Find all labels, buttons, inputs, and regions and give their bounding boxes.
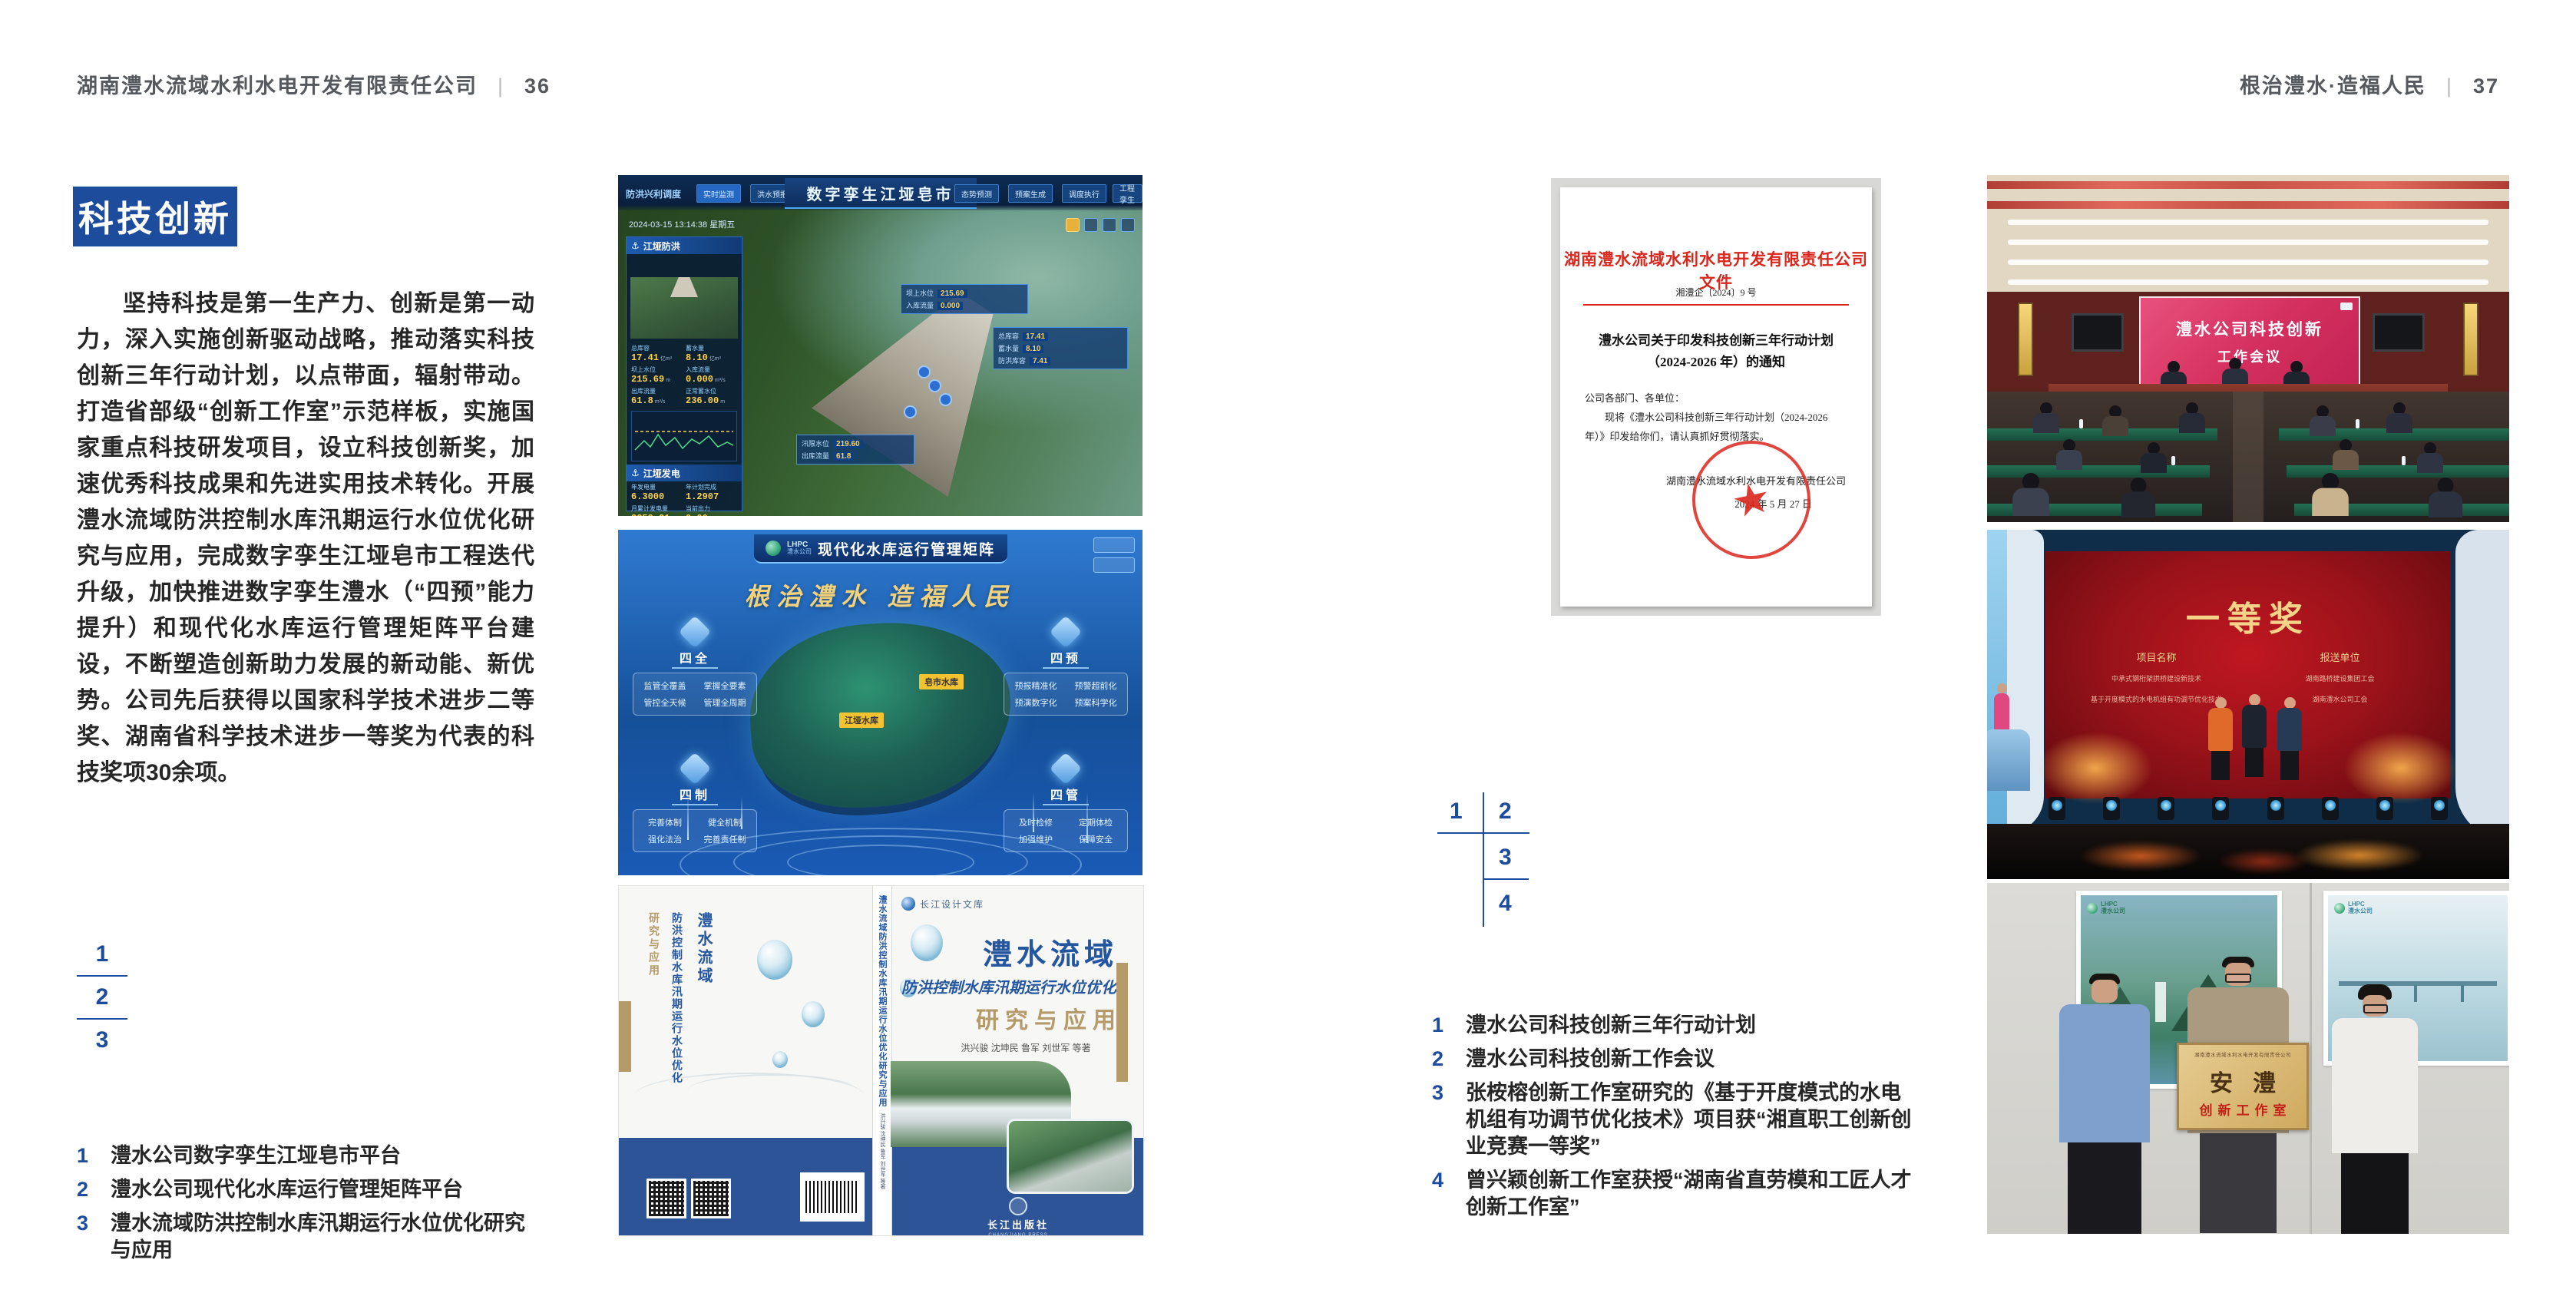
photo-innovation-meeting: 澧水公司科技创新 工作会议 bbox=[1987, 175, 2509, 522]
presenter-suit bbox=[2242, 694, 2267, 777]
panel-flood-header: ⚓ 江垭防洪 bbox=[627, 237, 742, 254]
hud-icon-cluster bbox=[1066, 218, 1135, 232]
logo-text: LHPC 澧水公司 bbox=[787, 541, 812, 555]
stage-light-icon bbox=[2376, 797, 2393, 820]
left-data-panel: ⚓ 江垭防洪 总库容17.41亿m³ 蓄水量8.10亿m³ 坝上水位215.69… bbox=[626, 236, 742, 511]
caption-row: 4 曾兴颖创新工作室获授“湖南省直劳模和工匠人才创新工作室” bbox=[1432, 1167, 1914, 1221]
index-divider-line bbox=[77, 975, 127, 977]
floor-reflection bbox=[2294, 839, 2425, 871]
gate-marker-icon bbox=[904, 405, 917, 418]
index-divider-line bbox=[1437, 832, 1529, 834]
series-badge: 长江设计文库 bbox=[901, 897, 984, 911]
caption-row: 3 张桉榕创新工作室研究的《基于开度模式的水电机组有功调节优化技术》项目获“湘直… bbox=[1432, 1080, 1914, 1160]
user-icon bbox=[1066, 218, 1080, 232]
isbn-barcode bbox=[800, 1172, 865, 1222]
qr-code bbox=[691, 1179, 731, 1218]
water-droplet bbox=[757, 940, 792, 980]
anchor-icon: ⚓ bbox=[631, 468, 640, 478]
index-number: 2 bbox=[1499, 798, 1512, 825]
drop-icon bbox=[679, 616, 711, 648]
header-divider: | bbox=[498, 74, 504, 98]
star-icon: ★ bbox=[1731, 478, 1772, 522]
panel-flood-title: 江垭防洪 bbox=[643, 240, 680, 253]
page-number-right: 37 bbox=[2473, 74, 2499, 98]
front-tan-bar bbox=[1116, 963, 1128, 1082]
light-pillar bbox=[687, 794, 689, 840]
caption-number: 2 bbox=[77, 1176, 95, 1203]
light-pillar bbox=[1086, 792, 1088, 843]
header-divider: | bbox=[2446, 74, 2453, 98]
caption-text: 曾兴颖创新工作室获授“湖南省直劳模和工匠人才创新工作室” bbox=[1466, 1167, 1914, 1221]
screen-title-line1: 澧水公司科技创新 bbox=[2176, 317, 2323, 340]
audience-person bbox=[2102, 405, 2128, 436]
gate-marker-icon bbox=[918, 365, 931, 379]
index-number: 3 bbox=[1499, 845, 1512, 871]
stage-light-icon bbox=[2212, 797, 2229, 820]
caption-number: 3 bbox=[77, 1210, 95, 1264]
gold-glow bbox=[2038, 732, 2153, 805]
caption-number: 2 bbox=[1432, 1046, 1450, 1073]
publisher-name: 长江出版社 bbox=[987, 1217, 1049, 1232]
group-title: 四预 bbox=[1043, 647, 1089, 669]
caption-text: 澧水公司科技创新工作会议 bbox=[1466, 1046, 1715, 1073]
index-number: 2 bbox=[77, 984, 127, 1010]
gate-marker-icon bbox=[939, 393, 952, 406]
matrix-header: LHPC 澧水公司 现代化水库运行管理矩阵 bbox=[754, 534, 1007, 564]
stage-light-icon bbox=[2267, 797, 2284, 820]
matrix-group-siyu: 四预 预报精准化预警超前化 预演数字化预案科学化 bbox=[1007, 620, 1124, 716]
stage-light-icon bbox=[2049, 797, 2065, 820]
front-title2: 研究与应用 bbox=[949, 1001, 1122, 1035]
person-white-tee bbox=[2325, 984, 2425, 1234]
water-bottle bbox=[2356, 419, 2359, 428]
map-label-jiangya: 江垭水库 bbox=[839, 713, 884, 728]
water-bottle bbox=[2171, 456, 2175, 465]
document-number: 湘澧企〔2024〕9 号 bbox=[1560, 286, 1872, 299]
matrix-title: 现代化水库运行管理矩阵 bbox=[818, 538, 995, 559]
front-subtitle: 防洪控制水库汛期运行水位优化 bbox=[894, 975, 1124, 997]
qr-code bbox=[646, 1179, 686, 1218]
lhpc-logo: LHPC澧水公司 bbox=[2334, 901, 2373, 915]
caption-text: 澧水公司现代化水库运行管理矩阵平台 bbox=[111, 1176, 463, 1203]
tab-situation-forecast: 态势预测 bbox=[954, 184, 999, 203]
figure-matrix-platform: LHPC 澧水公司 现代化水库运行管理矩阵 根治澧水 造福人民 江垭水库 皂市水… bbox=[618, 530, 1143, 875]
official-seal: ★ bbox=[1682, 430, 1822, 570]
caption-list-right: 1 澧水公司科技创新三年行动计划 2 澧水公司科技创新工作会议 3 张桉榕创新工… bbox=[1432, 1012, 1914, 1221]
figure-index-left: 1 2 3 bbox=[77, 941, 127, 1053]
matrix-group-sizhi: 四制 完善体制健全机制 强化法治完善责任制 bbox=[637, 757, 753, 852]
light-strip bbox=[2008, 260, 2488, 265]
dam-thumbnail bbox=[630, 277, 738, 339]
index-number: 4 bbox=[1499, 891, 1512, 917]
stage-light-icon bbox=[2322, 797, 2339, 820]
tab-plan-generation: 预案生成 bbox=[1008, 184, 1053, 203]
award-title: 一等奖 bbox=[2045, 591, 2451, 640]
audience-person bbox=[2121, 478, 2155, 517]
waterfall-shape bbox=[2155, 982, 2166, 1022]
document-body: 公司各部门、各单位： 现将《澧水公司科技创新三年行动计划（2024-2026 年… bbox=[1585, 388, 1849, 446]
module-label: 防洪兴利调度 bbox=[626, 187, 681, 200]
stat-cell: 年发电量6.3000 bbox=[631, 483, 683, 502]
group-title: 四制 bbox=[672, 784, 718, 805]
locate-icon bbox=[1103, 218, 1116, 232]
ripple-ring bbox=[787, 845, 974, 875]
stage-light-icon bbox=[2431, 797, 2448, 820]
dashboard-timestamp: 2024-03-15 13:14:38 星期五 bbox=[629, 218, 735, 230]
host-person bbox=[1992, 683, 2012, 733]
caption-row: 2 澧水公司科技创新工作会议 bbox=[1432, 1046, 1914, 1073]
audience-person bbox=[2179, 402, 2205, 433]
water-bottle bbox=[2079, 419, 2083, 428]
light-strip bbox=[2008, 220, 2488, 225]
plaque-org-line: 湖南澧水流域水利水电开发有限责任公司 bbox=[2194, 1050, 2291, 1058]
water-bottle bbox=[2402, 456, 2406, 465]
caption-text: 澧水流域防洪控制水库汛期运行水位优化研究与应用 bbox=[111, 1210, 545, 1264]
awardee-navy bbox=[2277, 697, 2302, 780]
index-divider-line bbox=[1483, 878, 1529, 880]
wall-lamp bbox=[2018, 303, 2033, 376]
water-droplet bbox=[802, 1001, 825, 1027]
stat-cell: 当前出力0.00 bbox=[686, 504, 737, 516]
book-spine: 澧水流域防洪控制水库汛期运行水位优化研究与应用 洪兴骏 沈坤民 鲁军 刘世军 等… bbox=[872, 886, 892, 1235]
stat-cell: 出库流量61.8m³/s bbox=[631, 387, 683, 406]
tab-project-twin: 工程孪生 bbox=[1113, 184, 1143, 203]
group-title: 四管 bbox=[1043, 784, 1089, 805]
dashboard-title: 数字孪生江垭皂市 bbox=[785, 178, 977, 209]
document-title: 澧水公司关于印发科技创新三年行动计划 （2024-2026 年）的通知 bbox=[1576, 330, 1857, 373]
light-strip bbox=[2008, 279, 2488, 285]
stat-cell: 总库容17.41亿m³ bbox=[631, 344, 683, 363]
map-tooltip-upstream: 坝上水位215.69 入库流量0.000 bbox=[901, 284, 1028, 314]
body-paragraph: 坚持科技是第一生产力、创新是第一动力，深入实施创新驱动战略，推动落实科技创新三年… bbox=[77, 286, 534, 791]
panel-power-title: 江垭发电 bbox=[643, 467, 680, 480]
stage-light-icon bbox=[2103, 797, 2120, 820]
caption-number: 1 bbox=[1432, 1012, 1450, 1039]
spine-title: 澧水流域防洪控制水库汛期运行水位优化研究与应用 bbox=[876, 895, 888, 1107]
stage-light-row bbox=[2049, 797, 2448, 825]
figure-digital-twin-platform: 防洪兴利调度 实时监测 洪水预报 防洪预警 数字孪生江垭皂市 态势预测 预案生成… bbox=[618, 175, 1143, 516]
series-name: 长江设计文库 bbox=[920, 898, 984, 911]
wall-seam bbox=[2310, 883, 2312, 1234]
logo-mark bbox=[2340, 303, 2353, 310]
audience-person bbox=[2056, 439, 2082, 470]
slogan-text: 根治澧水·造福人民 bbox=[2240, 69, 2426, 99]
dam-shape bbox=[670, 277, 698, 297]
lhpc-logo-icon bbox=[766, 541, 781, 556]
matrix-group-siguan: 四管 及时检修定期体检 加强维护保障安全 bbox=[1007, 757, 1124, 852]
caption-row: 1 澧水公司科技创新三年行动计划 bbox=[1432, 1012, 1914, 1039]
bridge-pier bbox=[2461, 985, 2464, 1002]
stat-cell: 年计划完成1.2907 bbox=[686, 483, 737, 502]
light-strip bbox=[2008, 240, 2488, 245]
wall-tv bbox=[2373, 313, 2425, 352]
index-number: 1 bbox=[1450, 798, 1463, 825]
stat-cell: 坝上水位215.69m bbox=[631, 365, 683, 385]
index-divider-line bbox=[1483, 792, 1484, 927]
left-page-header: 湖南澧水流域水利水电开发有限责任公司 | 36 bbox=[77, 69, 551, 99]
innovation-workshop-plaque: 湖南澧水流域水利水电开发有限责任公司 安澧 创新工作室 bbox=[2177, 1043, 2309, 1130]
caption-row: 1 澧水公司数字孪生江垭皂市平台 bbox=[77, 1142, 545, 1169]
anchor-icon: ⚓ bbox=[631, 240, 640, 251]
audience-person bbox=[2312, 473, 2349, 516]
company-name: 湖南澧水流域水利水电开发有限责任公司 bbox=[77, 69, 478, 99]
awardee-orange bbox=[2208, 697, 2233, 780]
publisher-name-en: CHANGJIANG PRESS bbox=[988, 1233, 1047, 1236]
stage-frame-right bbox=[2455, 530, 2509, 841]
index-number: 1 bbox=[77, 941, 127, 967]
settings-icon bbox=[1121, 218, 1135, 232]
caption-number: 3 bbox=[1432, 1080, 1450, 1160]
tab-realtime-monitor: 实时监测 bbox=[696, 184, 741, 203]
index-divider-line bbox=[77, 1018, 127, 1020]
group-items: 监管全覆盖掌握全要素 管控全天候管理全周期 bbox=[633, 673, 757, 716]
caption-text: 张桉榕创新工作室研究的《基于开度模式的水电机组有功调节优化技术》项目获“湘直职工… bbox=[1466, 1080, 1914, 1160]
lhpc-logo-icon bbox=[2334, 903, 2345, 914]
body-text: 现将《澧水公司科技创新三年行动计划（2024-2026 年）》印发给你们，请认真… bbox=[1585, 408, 1849, 446]
wall-tv bbox=[2072, 313, 2124, 352]
wall-lamp bbox=[2463, 303, 2478, 376]
water-droplet bbox=[772, 1051, 788, 1068]
green-dam-photo bbox=[1009, 1121, 1132, 1192]
document-page: 湖南澧水流域水利水电开发有限责任公司文件 湘澧企〔2024〕9 号 澧水公司关于… bbox=[1560, 187, 1872, 607]
building-icon bbox=[679, 752, 711, 785]
audience-person bbox=[2417, 442, 2443, 473]
map-label-zaoshi: 皂市水库 bbox=[919, 674, 964, 689]
reservoir-stats-grid: 总库容17.41亿m³ 蓄水量8.10亿m³ 坝上水位215.69m 入库流量0… bbox=[627, 342, 742, 408]
group-title: 四全 bbox=[672, 647, 718, 669]
figure-index-right: 1 2 3 4 bbox=[1443, 792, 1537, 931]
photo-award-ceremony: 一等奖 项目名称 中承式钢桁架拱桥建设新技术 基于开度模式的水电机组有功调节优化… bbox=[1987, 530, 2509, 879]
audience-person bbox=[2141, 442, 2167, 473]
front-title: 澧水流域 bbox=[949, 931, 1118, 973]
stage-light-icon bbox=[2158, 797, 2174, 820]
stat-cell: 蓄水量8.10亿m³ bbox=[686, 344, 737, 363]
publisher-logo-icon bbox=[1009, 1197, 1027, 1215]
authors-line: 洪兴骏 沈坤民 鲁军 刘世军 等著 bbox=[926, 1041, 1126, 1054]
figure-book-cover: 澧水流域 防洪控制水库汛期运行水位优化 研究与应用 澧水流域防洪控制水库汛期运行… bbox=[618, 885, 1144, 1236]
group-items: 预报精准化预警超前化 预演数字化预案科学化 bbox=[1004, 673, 1128, 716]
floor-reflection bbox=[2079, 841, 2202, 871]
figure-official-document: 湖南澧水流域水利水电开发有限责任公司文件 湘澧企〔2024〕9 号 澧水公司关于… bbox=[1551, 178, 1881, 616]
center-aisle bbox=[2233, 392, 2264, 522]
audience-person bbox=[2429, 478, 2462, 517]
caption-text: 澧水公司科技创新三年行动计划 bbox=[1466, 1012, 1756, 1039]
gear-icon bbox=[1050, 752, 1082, 785]
satellite-icon bbox=[1050, 616, 1082, 648]
back-cover-title: 澧水流域 防洪控制水库汛期运行水位优化 研究与应用 bbox=[646, 912, 715, 1165]
lhpc-logo-icon bbox=[2087, 903, 2098, 914]
layers-icon bbox=[1084, 218, 1098, 232]
brochure-spread: 湖南澧水流域水利水电开发有限责任公司 | 36 根治澧水·造福人民 | 37 科… bbox=[0, 0, 2576, 1306]
person-blue-polo bbox=[2055, 974, 2154, 1234]
caption-list-left: 1 澧水公司数字孪生江垭皂市平台 2 澧水公司现代化水库运行管理矩阵平台 3 澧… bbox=[77, 1142, 545, 1264]
water-droplet bbox=[911, 924, 943, 961]
caption-row: 3 澧水流域防洪控制水库汛期运行水位优化研究与应用 bbox=[77, 1210, 545, 1264]
matrix-button bbox=[1093, 537, 1135, 553]
audience-person bbox=[2033, 402, 2059, 433]
gold-glow bbox=[2343, 732, 2459, 805]
section-title-badge: 科技创新 bbox=[73, 187, 237, 246]
right-page-header: 根治澧水·造福人民 | 37 bbox=[2240, 69, 2499, 99]
audience-person bbox=[2012, 473, 2049, 516]
index-number: 3 bbox=[77, 1027, 127, 1053]
stat-cell: 月累计发电量3259.21 bbox=[631, 504, 683, 516]
back-tan-block bbox=[619, 1001, 631, 1072]
generation-stats-grid: 年发电量6.3000 年计划完成1.2907 月累计发电量3259.21 当前出… bbox=[627, 481, 742, 516]
caption-number: 1 bbox=[77, 1142, 95, 1169]
changjiang-design-logo-icon bbox=[901, 897, 915, 911]
gate-marker-icon bbox=[928, 379, 941, 392]
ceiling bbox=[1987, 175, 2509, 292]
page-number-left: 36 bbox=[524, 74, 551, 98]
red-light-beam bbox=[1987, 181, 2509, 189]
red-light-beam bbox=[1987, 201, 2509, 209]
light-pillar bbox=[1033, 792, 1034, 832]
plaque-title: 安澧 bbox=[2210, 1064, 2296, 1098]
salutation: 公司各部门、各单位： bbox=[1585, 388, 1849, 408]
water-level-chart bbox=[631, 411, 737, 461]
map-tooltip-downstream: 汛限水位219.60 出库流量61.8 bbox=[796, 435, 914, 465]
lhpc-logo: LHPC澧水公司 bbox=[2087, 901, 2125, 915]
plaque-subtitle: 创新工作室 bbox=[2200, 1099, 2292, 1119]
tab-dispatch-execution: 调度执行 bbox=[1062, 184, 1106, 203]
caption-text: 澧水公司数字孪生江垭皂市平台 bbox=[111, 1142, 401, 1169]
map-tooltip-capacity: 总库容17.41 蓄水量8.10 防洪库容7.41 bbox=[993, 327, 1128, 369]
audience-person bbox=[2333, 439, 2359, 470]
matrix-button bbox=[1093, 557, 1135, 573]
caption-number: 4 bbox=[1432, 1167, 1450, 1221]
stat-cell: 入库流量0.000m³/s bbox=[686, 365, 737, 385]
podium bbox=[1987, 729, 2030, 791]
photo-innovation-workshop-plaque: LHPC澧水公司 LHPC澧水公司 bbox=[1987, 883, 2509, 1234]
red-divider-line bbox=[1583, 304, 1849, 306]
caption-row: 2 澧水公司现代化水库运行管理矩阵平台 bbox=[77, 1176, 545, 1203]
calligraphy-slogan: 根治澧水 造福人民 bbox=[618, 577, 1143, 613]
spine-authors: 洪兴骏 沈坤民 鲁军 刘世军 等著 bbox=[878, 1113, 886, 1189]
audience-person bbox=[2310, 405, 2336, 436]
audience-person bbox=[2386, 402, 2412, 433]
publisher-block: 长江出版社 CHANGJIANG PRESS bbox=[941, 1197, 1095, 1236]
panel-power-header: ⚓ 江垭发电 bbox=[627, 465, 742, 481]
light-pillar bbox=[741, 797, 742, 829]
matrix-group-siquan: 四全 监管全覆盖掌握全要素 管控全天候管理全周期 bbox=[637, 620, 753, 716]
stat-cell: 正常蓄水位236.00m bbox=[686, 387, 737, 406]
